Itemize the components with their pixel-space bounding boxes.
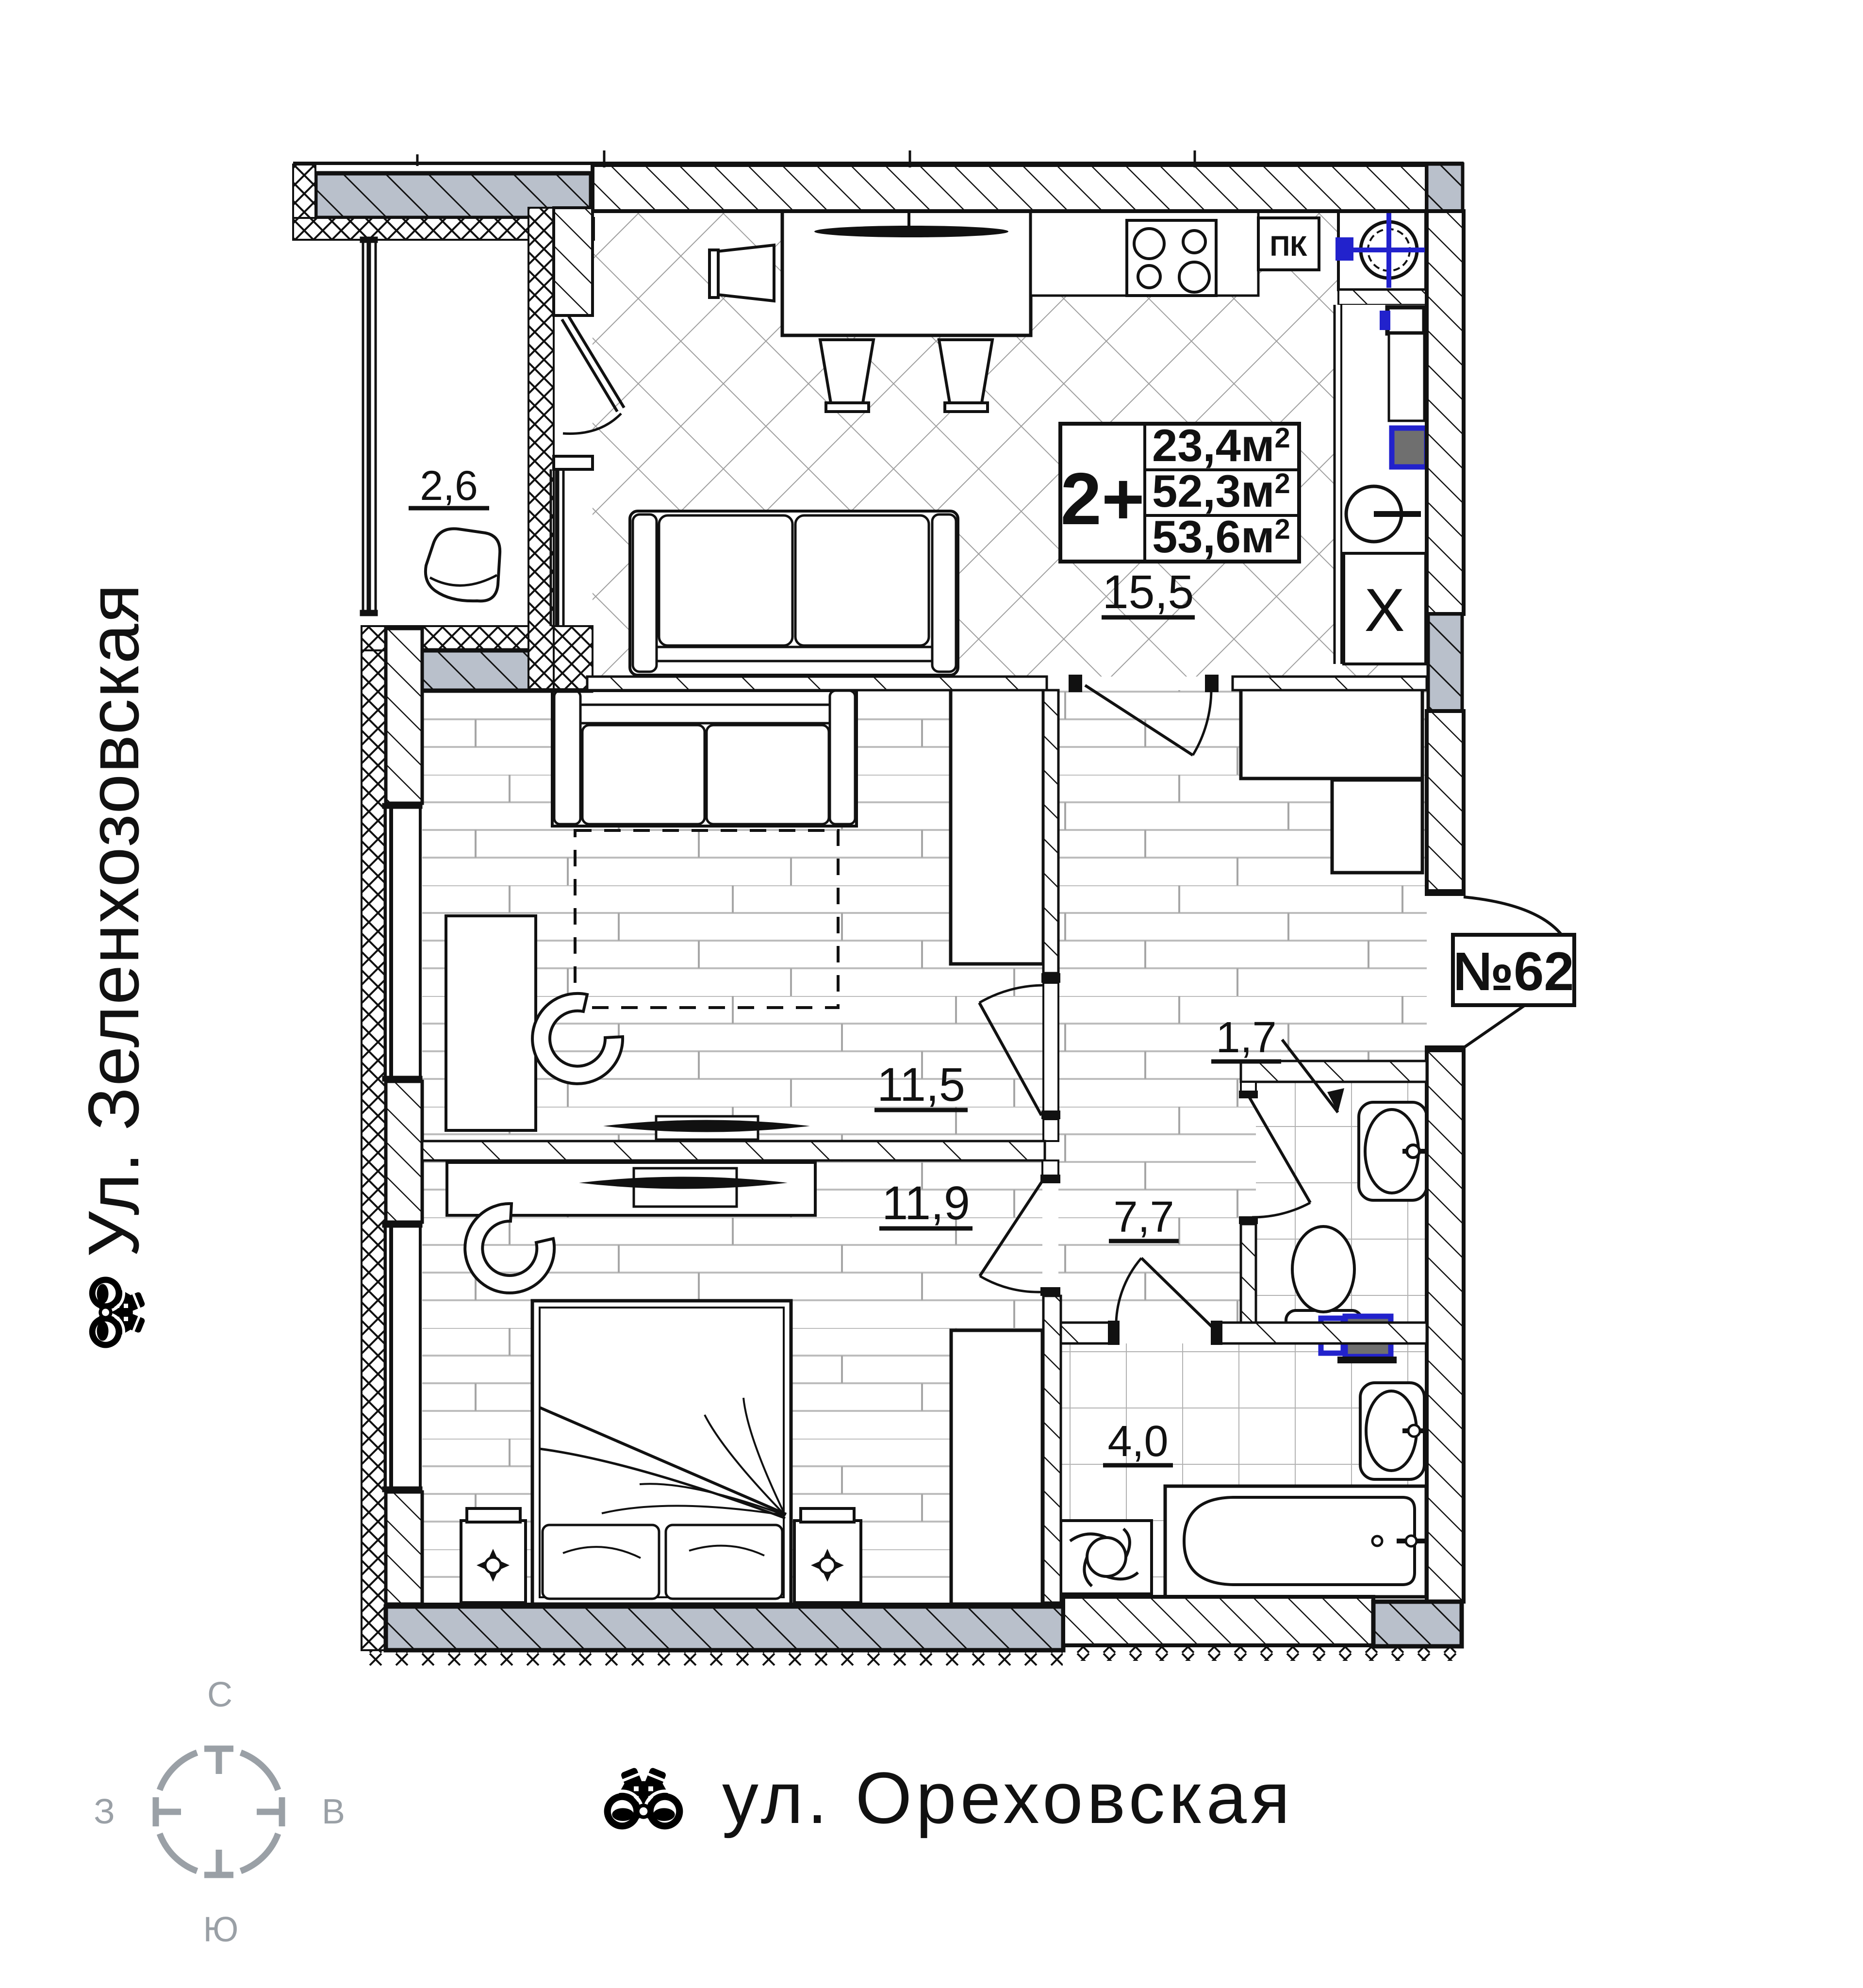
svg-text:1,7: 1,7 <box>1216 1013 1276 1062</box>
svg-text:X: X <box>1364 577 1404 644</box>
svg-text:11,5: 11,5 <box>877 1058 965 1111</box>
svg-text:В: В <box>322 1792 345 1831</box>
svg-text:ПК: ПК <box>1269 231 1307 262</box>
svg-text:23,4м2: 23,4м2 <box>1152 420 1290 471</box>
svg-text:ул. Ореховская: ул. Ореховская <box>722 1757 1294 1839</box>
svg-text:7,7: 7,7 <box>1113 1193 1174 1242</box>
svg-text:З: З <box>94 1792 115 1831</box>
svg-text:52,3м2: 52,3м2 <box>1152 465 1290 516</box>
svg-text:11,9: 11,9 <box>882 1176 970 1229</box>
svg-text:№62: №62 <box>1453 941 1574 1002</box>
svg-text:2,6: 2,6 <box>420 463 478 509</box>
svg-text:4,0: 4,0 <box>1107 1417 1168 1466</box>
svg-text:С: С <box>207 1675 232 1714</box>
svg-text:53,6м2: 53,6м2 <box>1152 511 1290 562</box>
svg-text:15,5: 15,5 <box>1103 565 1194 618</box>
svg-text:Ул. Зеленхозовская: Ул. Зеленхозовская <box>74 583 154 1257</box>
svg-text:Ю: Ю <box>203 1910 239 1949</box>
svg-text:2+: 2+ <box>1060 458 1144 540</box>
